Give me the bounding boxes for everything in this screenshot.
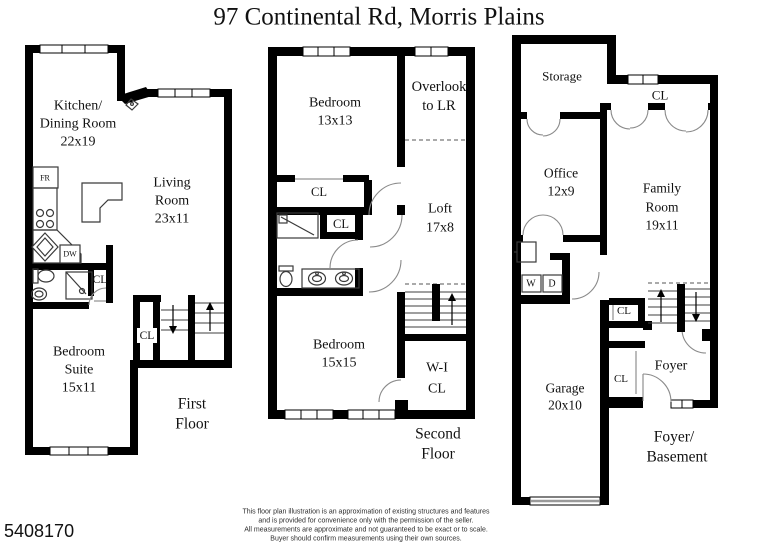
disclaimer-line3: All measurements are approximate and not…	[244, 527, 488, 534]
front-door-arc	[643, 374, 671, 402]
walk-in-closet-door-arc	[379, 380, 401, 402]
stove-icon	[37, 210, 54, 228]
bedroom-suite-label-line2: Suite	[65, 363, 94, 378]
living-room-label-line1: Living	[153, 176, 190, 191]
loft-label-line1: Loft	[428, 202, 452, 217]
disclaimer-line4: Buyer should confirm measurements using …	[270, 536, 461, 543]
disclaimer-line1: This floor plan illustration is an appro…	[242, 509, 490, 516]
storage-door-arc-right	[543, 119, 560, 136]
first-floor-label-line2: Floor	[175, 416, 209, 433]
family-closet-door-arc1	[611, 110, 630, 129]
office-label-line1: Office	[544, 166, 578, 181]
bedroom-front-label-line2: 13x13	[318, 114, 353, 129]
family-room-label-line2: Room	[645, 200, 679, 215]
toilet-icon	[38, 270, 54, 282]
family-closet-label: CL	[652, 88, 669, 103]
bedroom-back-label-line2: 15x15	[322, 356, 357, 371]
family-room-label-line1: Family	[643, 181, 682, 196]
toilet-tank-icon	[33, 269, 38, 283]
bathroom-door-arc	[330, 240, 358, 268]
toilet-icon	[280, 272, 292, 287]
first-floor-label-line1: First	[178, 396, 207, 413]
storage-label: Storage	[542, 69, 582, 84]
living-room-label-line2: Room	[155, 194, 189, 209]
kitchen-label-line1: Kitchen/	[54, 99, 102, 114]
family-room-label-line3: 19x11	[645, 218, 678, 233]
hall-door-arc	[369, 183, 401, 215]
basement-floor-label-line1: Foyer/	[654, 429, 695, 446]
kitchen-label-line3: 22x19	[61, 135, 96, 150]
loft-label-line2: 17x8	[426, 221, 454, 236]
garage-label-line2: 20x10	[548, 398, 582, 413]
floor-plan-page: 97 Continental Rd, Morris Plains	[0, 0, 768, 543]
listing-id: 5408170	[4, 521, 74, 541]
double-vanity-icon	[302, 269, 359, 288]
disclaimer-line2: and is provided for convenience only wit…	[258, 518, 473, 525]
second-floor-plan: Bedroom 13x13 Overlook to LR CL CL Loft …	[268, 47, 475, 463]
basement-stairs	[648, 283, 710, 332]
bedroom-suite-label-line1: Bedroom	[53, 345, 105, 360]
footer: This floor plan illustration is an appro…	[4, 509, 490, 543]
island-icon	[82, 183, 122, 222]
first-floor-plan: Kitchen/ Dining Room 22x19 Living Room 2…	[25, 45, 232, 455]
second-floor-label-line1: Second	[415, 426, 461, 443]
bedroom-door-arc	[369, 260, 401, 292]
family-closet-door-arc2	[630, 110, 648, 128]
basement-floor-label-line2: Basement	[646, 449, 708, 466]
fridge-label: FR	[40, 174, 50, 183]
bedroom-suite-label-line3: 15x11	[62, 381, 96, 396]
closet-upper-label: CL	[617, 305, 631, 317]
bath-sink-icon	[32, 288, 47, 300]
page-title: 97 Continental Rd, Morris Plains	[213, 4, 544, 31]
office-door-arc-left	[523, 215, 543, 235]
living-room-label-line3: 23x11	[155, 212, 189, 227]
stair-closet-label: CL	[140, 330, 155, 342]
storage-door-arc-left	[527, 119, 543, 135]
foyer-label: Foyer	[655, 359, 688, 374]
second-floor-stairs	[405, 284, 466, 327]
closet-b-label: CL	[333, 217, 349, 231]
hall-door-arc2	[370, 215, 402, 247]
office-label-line2: 12x9	[548, 184, 575, 199]
bedroom-front-label-line1: Bedroom	[309, 96, 361, 111]
family-closet-door-arc3	[665, 110, 686, 131]
office-door-arc-right	[543, 215, 563, 235]
closet-a-label: CL	[311, 185, 327, 199]
closet-lower-label: CL	[614, 373, 628, 385]
kitchen-label-line2: Dining Room	[40, 117, 117, 132]
bedroom-back-label-line1: Bedroom	[313, 338, 365, 353]
second-floor-label-line2: Floor	[421, 446, 455, 463]
floor-plan-canvas: 97 Continental Rd, Morris Plains	[0, 0, 768, 543]
kitchen-sink-icon	[32, 233, 58, 261]
walk-in-closet-label-line1: W-I	[426, 361, 448, 376]
walk-in-closet-label-line2: CL	[428, 382, 446, 397]
dryer-label: D	[548, 279, 555, 290]
hall-door-arc	[572, 272, 599, 299]
garage-label-line1: Garage	[546, 381, 585, 396]
toilet-tank-icon	[279, 266, 293, 271]
bath-closet-label: CL	[93, 274, 108, 286]
basement-plan: Storage CL Office 12x9 Family Room 19x11…	[512, 35, 718, 505]
family-closet-door-arc4	[686, 110, 708, 132]
washer-label: W	[526, 279, 536, 290]
overlook-label-line1: Overlook	[412, 79, 468, 95]
overlook-label-line2: to LR	[422, 98, 456, 114]
dishwasher-label: DW	[63, 250, 77, 259]
